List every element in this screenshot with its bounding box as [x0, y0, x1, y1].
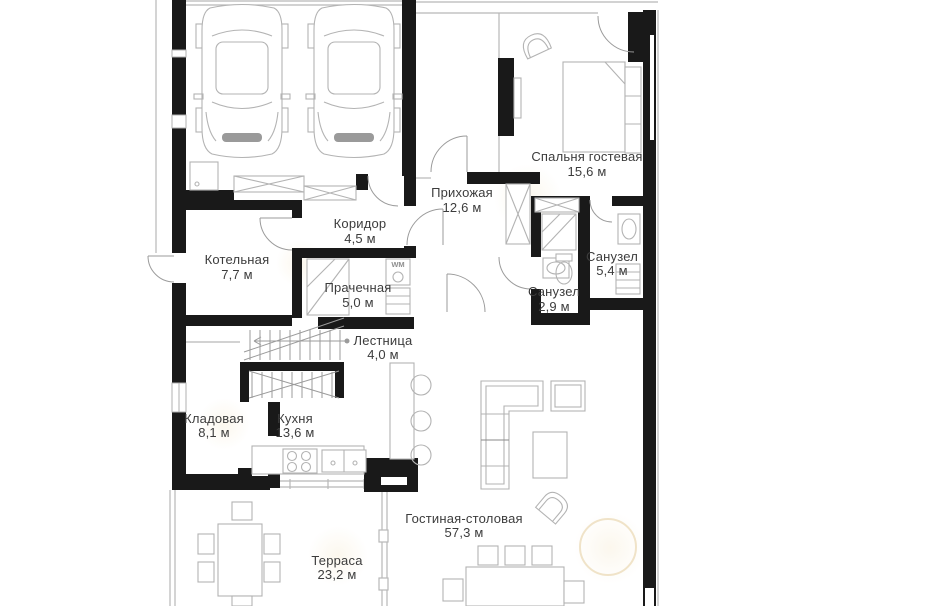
room-label-storage: Кладовая: [184, 411, 244, 426]
terrace-chair: [198, 562, 214, 582]
room-area-laundry: 5,0 м: [342, 295, 374, 310]
room-area-entry-hall: 12,6 м: [442, 200, 481, 215]
floor-plan: WM: [0, 0, 926, 606]
bathroom1-door-arc: [590, 200, 612, 222]
terrace-chair: [264, 534, 280, 554]
car-2: [306, 5, 402, 158]
exterior-door-arc: [148, 256, 174, 282]
corridor-door-arc: [407, 209, 443, 245]
terrace-furniture: [198, 502, 280, 606]
washing-machine-label: WM: [391, 260, 404, 269]
room-area-corridor: 4,5 м: [344, 231, 376, 246]
bedside-unit: [625, 67, 641, 153]
room-label-boiler-room: Котельная: [205, 252, 270, 267]
room-area-bathroom-2: 2,9 м: [538, 299, 570, 314]
dining-chair: [564, 581, 584, 603]
terrace-chair: [232, 502, 252, 520]
bathroom2-door-arc: [499, 257, 531, 289]
room-label-staircase: Лестница: [354, 333, 414, 348]
room-label-corridor: Коридор: [334, 216, 387, 231]
room-label-bathroom-2: Санузел: [528, 284, 580, 299]
toilet-tank: [556, 254, 572, 261]
armchair: [519, 30, 551, 59]
bedroom-furniture: [514, 30, 641, 153]
room-label-guest-bedroom: Спальня гостевая: [531, 149, 642, 164]
staircase: [244, 318, 350, 398]
dining-table: [466, 567, 564, 606]
room-area-staircase: 4,0 м: [367, 347, 399, 362]
kitchen-island: [390, 363, 414, 459]
terrace-table: [218, 524, 262, 596]
terrace-chair: [232, 596, 252, 606]
coffee-table: [533, 432, 567, 478]
room-label-terrace: Терраса: [311, 553, 363, 568]
room-area-boiler-room: 7,7 м: [221, 267, 253, 282]
bedroom-shelf: [514, 78, 521, 118]
dining-chair: [532, 546, 552, 565]
car-1: [194, 5, 290, 158]
floor-plan-canvas: WM: [0, 0, 926, 606]
terrace-chair: [264, 562, 280, 582]
room-area-bathroom-1: 5,4 м: [596, 263, 628, 278]
garage: [190, 5, 402, 201]
room-area-living-dining: 57,3 м: [444, 525, 483, 540]
dining-chair: [443, 579, 463, 601]
tub-chair: [536, 488, 572, 524]
room-area-guest-bedroom: 15,6 м: [567, 164, 606, 179]
dining-chair: [505, 546, 525, 565]
terrace-chair: [198, 534, 214, 554]
room-area-kitchen: 13,6 м: [275, 425, 314, 440]
dining-chair: [478, 546, 498, 565]
room-label-entry-hall: Прихожая: [431, 185, 493, 200]
room-label-laundry: Прачечная: [324, 280, 391, 295]
room-label-kitchen: Кухня: [277, 411, 313, 426]
garage-door-arc: [368, 176, 398, 206]
floor-drain: [190, 162, 218, 190]
room-label-bathroom-1: Санузел: [586, 249, 638, 264]
room-area-terrace: 23,2 м: [317, 567, 356, 582]
living-door-arc: [447, 274, 485, 312]
bed: [563, 62, 625, 152]
room-area-storage: 8,1 м: [198, 425, 230, 440]
vestibule-door-arc: [431, 136, 467, 172]
room-label-living-dining: Гостиная-столовая: [405, 511, 523, 526]
